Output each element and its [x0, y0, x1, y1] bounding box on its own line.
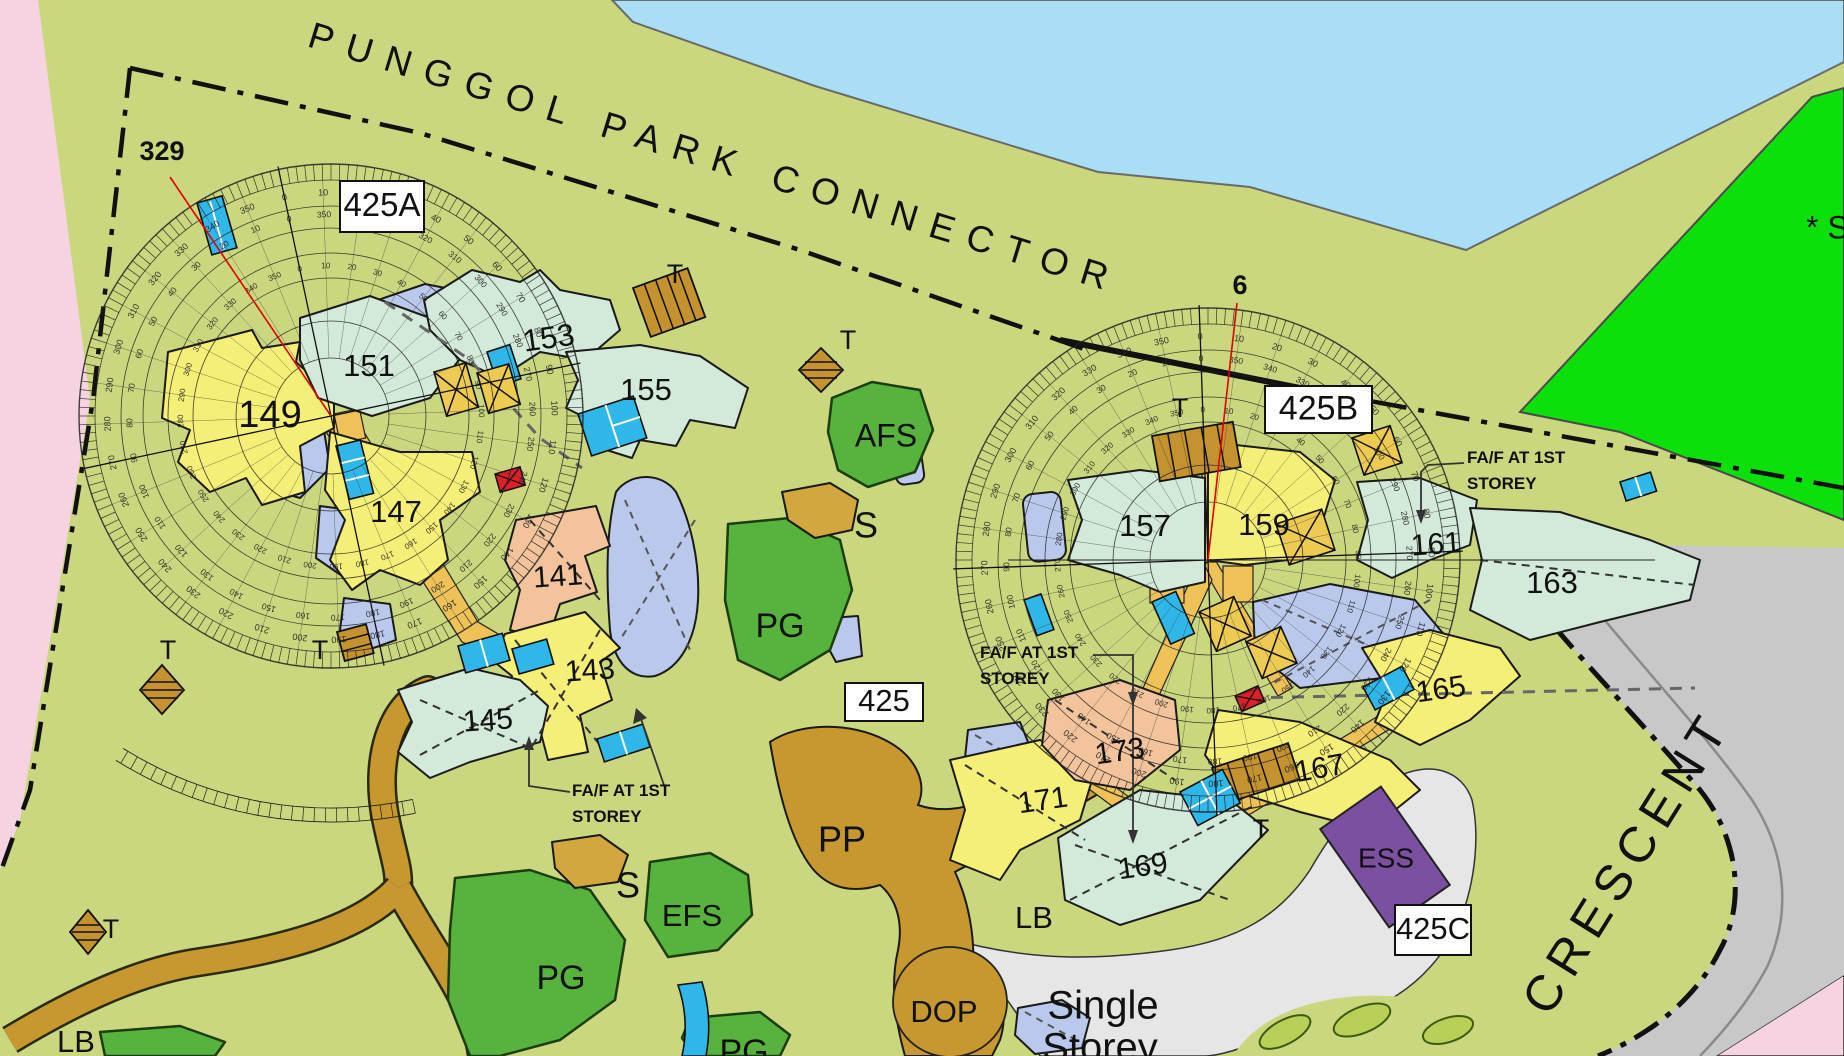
degree-label: 290	[104, 377, 116, 393]
building-label-149: 149	[238, 394, 301, 436]
building-label-159: 159	[1238, 507, 1290, 542]
note-faf-line1: FA/F AT 1ST	[980, 643, 1079, 662]
area-label: * S	[1806, 209, 1844, 245]
degree-label: 260	[1402, 580, 1414, 596]
degree-label: 170	[1172, 754, 1188, 766]
amenity-label-efs: EFS	[662, 898, 722, 933]
building-label-161: 161	[1410, 526, 1462, 562]
building-label-163: 163	[1526, 565, 1578, 600]
degree-label: 20	[347, 262, 358, 272]
shelter-label-t: T	[103, 914, 120, 944]
svg-text:425A: 425A	[343, 186, 420, 223]
degree-label: 100	[1351, 574, 1362, 589]
degree-label: 70	[126, 382, 137, 393]
building-label-151: 151	[343, 348, 395, 383]
area-label: Single	[1047, 984, 1158, 1028]
degree-label: 90	[1001, 562, 1011, 572]
degree-label: 260	[527, 402, 537, 417]
degree-label: 0	[1198, 353, 1203, 363]
shelter-label-t: T	[1172, 393, 1189, 423]
degree-label: 200	[302, 559, 317, 570]
site-plan-map[interactable]: 0102030405060708090100110120130140150160…	[0, 0, 1844, 1056]
amenity-label-s: S	[854, 505, 878, 546]
amenity-label-afs: AFS	[855, 417, 917, 453]
block-box-425B: 425B	[1265, 386, 1372, 433]
building-label-173: 173	[1093, 732, 1147, 772]
degree-label: 250	[525, 436, 537, 452]
building-label-165: 165	[1414, 670, 1468, 710]
shelter-label-t: T	[667, 259, 684, 289]
amenity-label-pg: PG	[536, 959, 585, 997]
degree-label: 80	[1003, 526, 1014, 537]
degree-label: 190	[1169, 775, 1185, 787]
degree-label: 200	[292, 631, 308, 643]
svg-text:425B: 425B	[1279, 389, 1358, 427]
block-box-425: 425	[845, 683, 923, 721]
shelter-label-t: T	[312, 635, 329, 665]
degree-label: 110	[546, 439, 558, 455]
degree-label: 350	[317, 209, 332, 219]
amenity-label-dop: DOP	[910, 994, 977, 1029]
building-label-141: 141	[532, 558, 584, 594]
degree-label: 10	[1233, 333, 1244, 344]
note-faf-line1: FA/F AT 1ST	[572, 781, 671, 800]
degree-label: 280	[1054, 531, 1065, 546]
building-label-143: 143	[564, 652, 616, 688]
building-label-145: 145	[462, 702, 514, 738]
building-label-147: 147	[370, 494, 422, 529]
building-label-153: 153	[521, 317, 577, 359]
degree-label: 100	[549, 400, 560, 415]
building-label-169: 169	[1116, 847, 1170, 887]
degree-label: 280	[102, 416, 113, 431]
survey-mark-label: 6	[1232, 270, 1247, 300]
building-label-155: 155	[620, 372, 672, 407]
amenity-label-lb: LB	[57, 1024, 95, 1056]
degree-label: 270	[979, 560, 990, 575]
svg-text:425C: 425C	[1396, 911, 1470, 946]
shelter-label-t: T	[160, 635, 177, 665]
block-box-425C: 425C	[1395, 905, 1471, 955]
note-faf-line1: FA/F AT 1ST	[1467, 448, 1566, 467]
degree-label: 0	[1197, 331, 1202, 341]
degree-label: 160	[295, 610, 311, 622]
degree-label: 280	[176, 414, 185, 428]
note-faf-line2: STOREY	[572, 807, 642, 826]
degree-label: 290	[177, 387, 188, 402]
degree-label: 190	[1179, 703, 1194, 714]
degree-label: 10	[318, 187, 328, 197]
degree-label: 110	[474, 430, 485, 444]
degree-label: 180	[1206, 706, 1220, 715]
degree-label: 180	[1207, 756, 1222, 766]
degree-label: 10	[321, 261, 331, 270]
degree-label: 180	[1208, 778, 1223, 789]
map-canvas[interactable]: 0102030405060708090100110120130140150160…	[0, 0, 1844, 1056]
degree-label: 90	[1354, 550, 1363, 560]
amenity-label-pp: PP	[818, 819, 866, 860]
degree-label: 100	[477, 404, 486, 418]
shelter-label-t: T	[1253, 814, 1270, 844]
svg-text:425: 425	[858, 683, 910, 718]
degree-label: 80	[124, 418, 134, 428]
amenity-label-s: S	[616, 865, 640, 906]
building-label-157: 157	[1119, 508, 1171, 543]
amenity-label-lb: LB	[1015, 900, 1053, 935]
amenity-label-pg: PG	[719, 1033, 768, 1056]
shelter-label-t: T	[840, 325, 857, 355]
block-box-425A: 425A	[340, 181, 424, 232]
area-label: Storey	[1042, 1026, 1158, 1056]
degree-label: 100	[1423, 583, 1435, 599]
degree-label: 280	[981, 521, 993, 537]
survey-mark-label: 329	[139, 136, 184, 166]
note-faf-line2: STOREY	[1467, 474, 1537, 493]
amenity-label-ess: ESS	[1358, 842, 1414, 873]
degree-label: 190	[329, 562, 343, 571]
degree-label: 90	[544, 364, 556, 376]
building-label-171: 171	[1016, 781, 1070, 821]
degree-label: 170	[330, 612, 345, 622]
degree-label: 190	[331, 634, 346, 645]
amenity-label-pg: PG	[755, 607, 804, 645]
note-faf-line2: STOREY	[980, 669, 1050, 688]
